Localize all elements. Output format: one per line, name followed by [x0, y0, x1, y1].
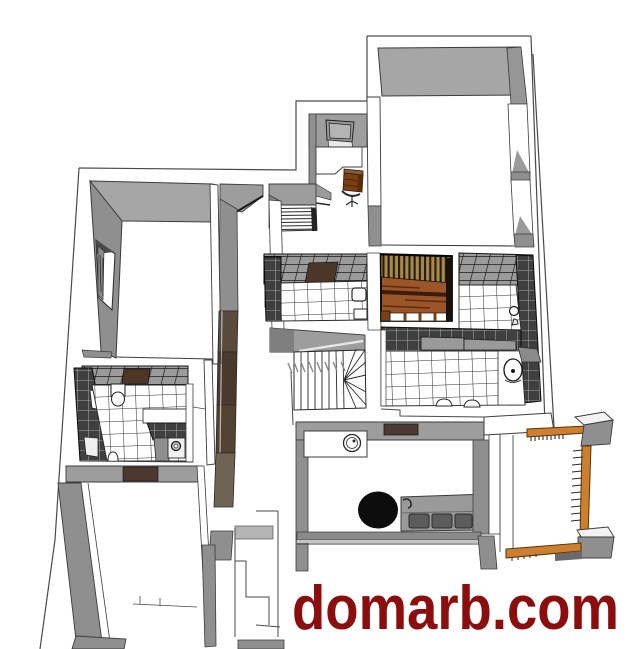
- svg-text:domarb.com: domarb.com: [292, 574, 619, 643]
